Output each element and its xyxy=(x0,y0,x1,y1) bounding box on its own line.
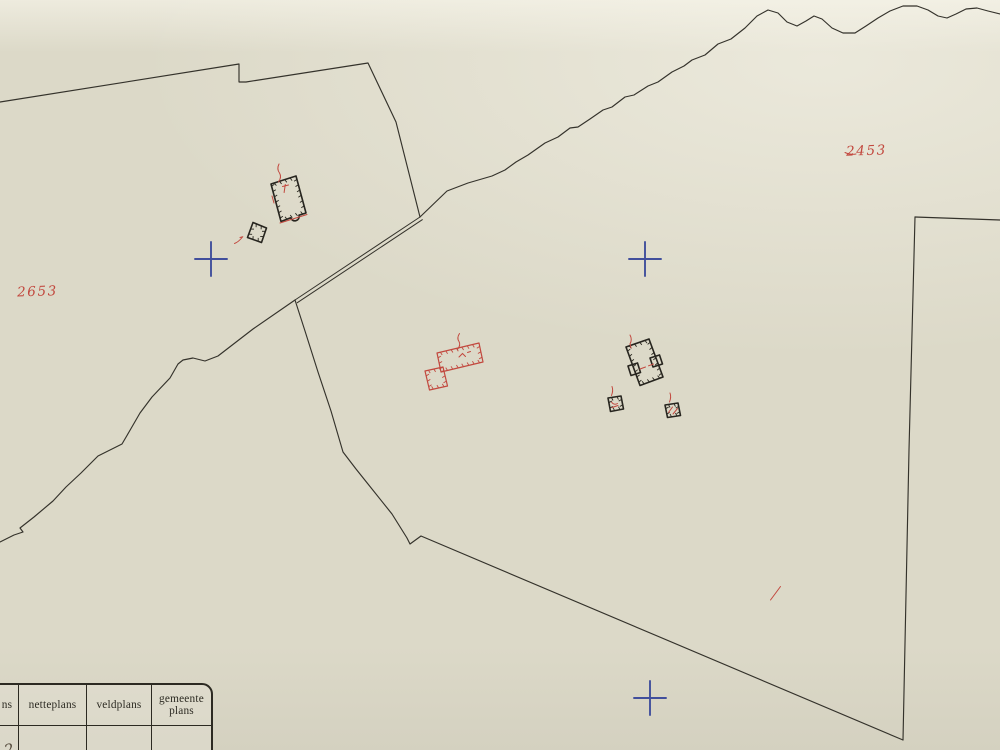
mark-southeast-tick xyxy=(771,587,781,601)
building-east-annex-right xyxy=(650,355,663,367)
mark-east-main-dashes xyxy=(640,364,654,369)
parcel-number-left: 2653 xyxy=(16,283,58,300)
survey-cross-icon xyxy=(634,681,666,715)
mark-nw-barn-inner xyxy=(283,185,289,193)
map-canvas: 2653 2453 xyxy=(0,0,1000,750)
mark-center-inner xyxy=(459,352,471,358)
boundary-east-parcel-north-edge xyxy=(915,217,1000,220)
parcel-boundaries xyxy=(0,6,1000,740)
mark-nw-barn-baseline xyxy=(280,215,307,224)
survey-cross-icon xyxy=(195,242,227,276)
building-hatch-ticks xyxy=(426,368,446,389)
boundary-southwest xyxy=(0,300,295,542)
legend-header-cut-column: ns xyxy=(0,685,19,726)
mark-nw-shed-arrow xyxy=(235,237,243,244)
parcel-numbers: 2653 2453 xyxy=(16,142,887,300)
parcel-number-right: 2453 xyxy=(845,142,887,159)
legend-entry-cell xyxy=(87,726,152,750)
legend-header-netteplans: netteplans xyxy=(19,685,87,726)
legend-table: ns netteplans veldplans gemeente plans 2 xyxy=(0,683,213,750)
mark-center-leader xyxy=(458,334,460,350)
legend-header-veldplans: veldplans xyxy=(87,685,152,726)
legend-header-row: ns netteplans veldplans gemeente plans xyxy=(0,685,211,726)
legend-entry-cell xyxy=(152,726,211,750)
boundary-middle-parcel xyxy=(295,300,903,740)
red-survey-marks xyxy=(235,153,857,601)
survey-cross-icon xyxy=(629,242,661,276)
survey-crosses xyxy=(195,242,666,715)
new-survey-buildings xyxy=(425,343,483,390)
building-hatch-ticks xyxy=(272,178,305,220)
building-nw-barn xyxy=(271,176,306,222)
building-hatch-ticks xyxy=(438,345,482,371)
building-east-main xyxy=(626,339,663,386)
cadastral-map-sheet: 2653 2453 ns netteplans veldplans gemeen… xyxy=(0,0,1000,750)
existing-buildings xyxy=(248,176,681,418)
mark-east-shedR-leader xyxy=(670,393,671,402)
building-hatch-ticks xyxy=(666,404,680,417)
legend-header-gemeenteplans: gemeente plans xyxy=(152,685,211,726)
mark-east-shedL-leader xyxy=(612,387,613,396)
legend-entry-cell: 2 xyxy=(0,726,19,750)
building-center-red-main xyxy=(437,343,483,372)
mark-nw-barn-leader xyxy=(278,164,281,182)
building-hatch-ticks xyxy=(628,340,662,384)
boundary-stream-line xyxy=(420,6,1000,217)
boundary-east-parcel-west-edge xyxy=(903,217,915,740)
building-nw-shed xyxy=(248,223,267,243)
legend-entry-row: 2 xyxy=(0,726,211,750)
road-double-line xyxy=(295,217,422,303)
boundary-northwest-parcel xyxy=(0,63,420,217)
handwritten-entry-mark: 2 xyxy=(3,741,16,750)
building-east-shed-right xyxy=(665,403,681,418)
legend-entry-cell xyxy=(19,726,87,750)
